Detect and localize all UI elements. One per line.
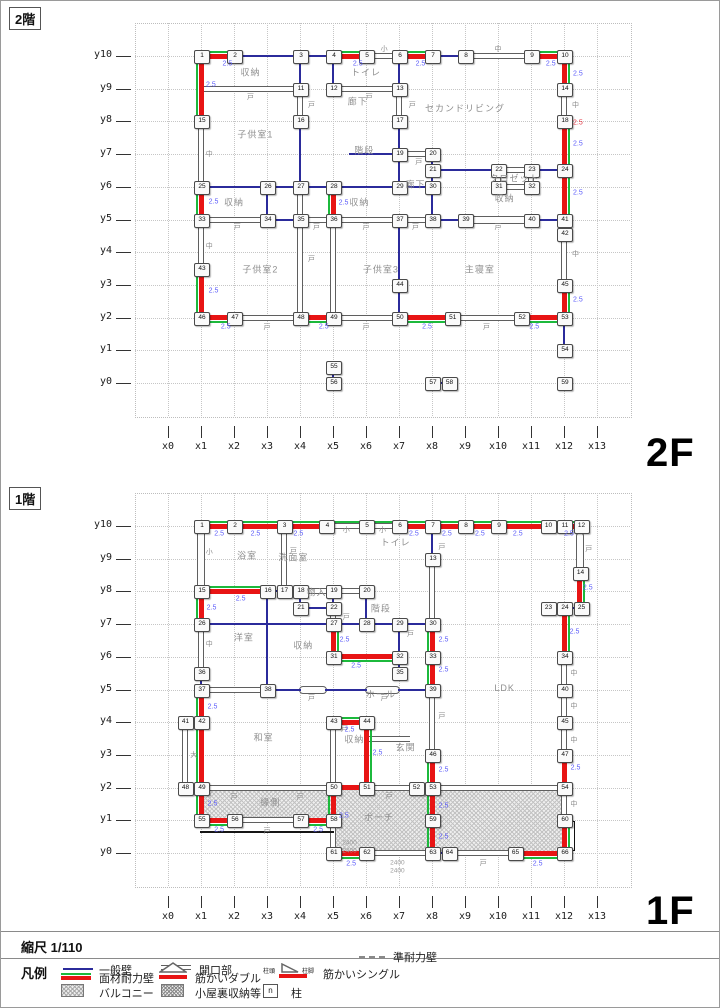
strength-value-label: 2.5 — [475, 530, 485, 537]
y-axis-label: y9 — [76, 552, 112, 563]
x-axis-tick — [465, 426, 466, 438]
wall-opening — [297, 219, 303, 319]
dimension-label: 2400 — [342, 839, 356, 846]
door-window-label: 戸 — [409, 100, 416, 110]
door-window-label: 戸 — [363, 322, 370, 332]
legend-brace-double-red — [159, 975, 187, 979]
y-axis-label: y3 — [76, 278, 112, 289]
node-box: 57 — [425, 377, 441, 391]
x-axis-tick — [564, 426, 565, 438]
x-axis-label: x7 — [385, 911, 413, 922]
node-box: 52 — [409, 782, 425, 796]
y-axis-label: y10 — [76, 49, 112, 60]
door-window-label: 戸 — [308, 254, 315, 264]
y-axis-tick — [116, 285, 131, 286]
x-axis-label: x7 — [385, 441, 413, 452]
door-window-label: 中 — [206, 241, 213, 251]
node-box: 41 — [557, 214, 573, 228]
strength-value-label: 2.5 — [546, 60, 556, 67]
door-window-label: 戸 — [231, 792, 238, 802]
door-window-label: 中 — [495, 44, 502, 54]
y-axis-tick — [116, 722, 131, 723]
node-box: 17 — [392, 115, 408, 129]
wall-opening — [200, 785, 334, 791]
x-axis-tick — [399, 896, 400, 908]
room-label: 子供室2 — [242, 262, 278, 275]
door-window-label: 小 — [343, 525, 350, 535]
door-window-label: 戸 — [438, 711, 445, 721]
strength-value-label: 2.5 — [439, 666, 449, 673]
wall-structural-red — [200, 589, 268, 594]
panel-green-line — [332, 660, 400, 662]
node-box: 32 — [392, 651, 408, 665]
strength-value-label: 2.5 — [208, 704, 218, 711]
x-axis-label: x1 — [187, 911, 215, 922]
structural-wall-plan-page: 2階 1階 2F 1F 1234567891011121314151617181… — [0, 0, 720, 1008]
node-box: 55 — [194, 814, 210, 828]
strength-value-label: 2.5 — [345, 726, 355, 733]
x-axis-tick — [234, 896, 235, 908]
y-axis-label: y5 — [76, 213, 112, 224]
wall-opening — [431, 785, 565, 791]
wall-structural-red — [332, 654, 400, 659]
door-window-label: 戸 — [234, 222, 241, 232]
wall-opening — [233, 817, 301, 823]
legend-brace-single-icon — [281, 963, 299, 973]
node-box: 21 — [293, 602, 309, 616]
x-axis-label: x0 — [154, 441, 182, 452]
x-axis-tick — [267, 426, 268, 438]
wall-opening — [330, 219, 336, 319]
node-box: 7 — [425, 520, 441, 534]
x-axis-tick — [498, 426, 499, 438]
strength-value-label: 2.5 — [206, 82, 216, 89]
y-axis-tick — [116, 853, 131, 854]
y-axis-label: y6 — [76, 180, 112, 191]
node-box: 21 — [425, 164, 441, 178]
node-box: 36 — [194, 667, 210, 681]
node-box: 14 — [573, 567, 589, 581]
legend-semi-wall-label: 準耐力壁 — [393, 949, 437, 965]
strength-value-label: 2.5 — [573, 141, 583, 148]
x-axis-label: x5 — [319, 911, 347, 922]
door-window-label: 戸 — [386, 791, 393, 801]
node-box: 42 — [194, 716, 210, 730]
legend-brace-head-label: 柱頭 — [263, 966, 275, 975]
x-axis-label: x11 — [517, 441, 545, 452]
strength-value-label: 2.5 — [209, 198, 219, 205]
dimension-label: 2400 — [342, 848, 356, 855]
node-box: 66 — [557, 847, 573, 861]
room-label: 収納 — [224, 196, 244, 209]
strength-value-label: 2.5 — [513, 530, 523, 537]
node-box: 51 — [359, 782, 375, 796]
node-box: 34 — [260, 214, 276, 228]
wall-opening — [182, 721, 188, 788]
panel-green-line — [427, 754, 429, 854]
room-label: 物入 — [306, 586, 326, 599]
y-axis-tick — [116, 591, 131, 592]
door-window-label: 戸 — [363, 222, 370, 232]
strength-value-label: 2.5 — [442, 530, 452, 537]
node-box: 24 — [557, 164, 573, 178]
room-label: 廊下 — [405, 178, 425, 191]
divider-legend — [1, 958, 720, 959]
wall-opening — [448, 850, 516, 856]
x-axis-label: x8 — [418, 911, 446, 922]
legend-brace-single-label: 筋かいシングル — [323, 966, 400, 982]
x-axis-label: x3 — [253, 911, 281, 922]
x-axis-tick — [432, 426, 433, 438]
legend-attic-sample — [161, 984, 184, 997]
node-box: 16 — [260, 585, 276, 599]
node-box: 48 — [178, 782, 194, 796]
panel-green-line — [200, 586, 268, 588]
node-box: 45 — [557, 279, 573, 293]
node-box: 26 — [194, 618, 210, 632]
node-box: 54 — [557, 344, 573, 358]
node-box: 19 — [326, 585, 342, 599]
y-axis-tick — [116, 820, 131, 821]
panel-green-line — [200, 521, 582, 523]
node-box: 35 — [392, 667, 408, 681]
node-box: 15 — [194, 585, 210, 599]
wall-opening — [330, 721, 336, 788]
strength-value-label: 2.5 — [533, 860, 543, 867]
x-axis-label: x8 — [418, 441, 446, 452]
x-axis-label: x6 — [352, 441, 380, 452]
door-window-label: 中 — [570, 735, 577, 745]
x-axis-label: x12 — [550, 441, 578, 452]
floor-2f-title: 2階 — [9, 7, 41, 30]
door-window-label: 中 — [570, 799, 577, 809]
strength-value-label: 2.5 — [373, 750, 383, 757]
node-box: 47 — [557, 749, 573, 763]
legend-balcony-label: バルコニー — [99, 985, 154, 1001]
room-label: クロゼット — [489, 171, 539, 184]
x-axis-tick — [498, 896, 499, 908]
room-label: 収納 — [344, 732, 364, 745]
y-axis-label: y8 — [76, 114, 112, 125]
node-box: 16 — [293, 115, 309, 129]
y-axis-tick — [116, 350, 131, 351]
x-axis-tick — [531, 896, 532, 908]
strength-value-label: 2.5 — [209, 287, 219, 294]
x-axis-tick — [366, 426, 367, 438]
strength-value-label: 2.5 — [236, 595, 246, 602]
node-box: 53 — [425, 782, 441, 796]
y-axis-tick — [116, 788, 131, 789]
node-box: 39 — [458, 214, 474, 228]
node-box: 51 — [445, 312, 461, 326]
x-axis-label: x2 — [220, 441, 248, 452]
door-window-label: 戸 — [412, 222, 419, 232]
x-axis-label: x10 — [484, 911, 512, 922]
room-label: 収納 — [495, 192, 515, 205]
node-box: 25 — [574, 602, 590, 616]
y-axis-tick — [116, 187, 131, 188]
door-window-label: 戸 — [415, 157, 422, 167]
strength-value-label: 2.5 — [422, 323, 432, 330]
wall-general — [200, 186, 301, 188]
door-window-label: 小 — [206, 547, 213, 557]
x-axis-tick — [300, 426, 301, 438]
y-axis-label: y2 — [76, 781, 112, 792]
room-label: 浴室 — [237, 549, 257, 562]
node-box: 37 — [392, 214, 408, 228]
node-box: 4 — [319, 520, 335, 534]
dimension-label: 2400 — [390, 859, 404, 866]
node-box: 28 — [359, 618, 375, 632]
legend-title: 凡例 — [21, 963, 47, 982]
door-window-label: 中 — [206, 639, 213, 649]
x-axis-tick — [564, 896, 565, 908]
node-box: 8 — [458, 520, 474, 534]
legend-panel-wall-label: 面材耐力壁 — [99, 970, 154, 986]
room-label: 廊下 — [348, 95, 368, 108]
legend-post-sample: n — [263, 984, 278, 998]
node-box: 6 — [392, 50, 408, 64]
node-box: 30 — [425, 618, 441, 632]
node-box: 56 — [227, 814, 243, 828]
node-box: 55 — [326, 361, 342, 375]
y-axis-tick — [116, 755, 131, 756]
strength-value-label: 2.5 — [573, 190, 583, 197]
room-label: 階段 — [371, 601, 391, 614]
node-box: 42 — [557, 228, 573, 242]
node-box: 28 — [326, 181, 342, 195]
legend-panel-red-sample — [61, 976, 91, 980]
node-box: 29 — [392, 618, 408, 632]
strength-value-label: 2.5 — [439, 766, 449, 773]
node-box: 35 — [293, 214, 309, 228]
door-window-label: 戸 — [407, 629, 414, 639]
node-box: 38 — [260, 684, 276, 698]
door-window-label: 戸 — [290, 546, 297, 556]
strength-value-label: 2.5 — [570, 629, 580, 636]
x-axis-label: x0 — [154, 911, 182, 922]
wall-opening — [200, 687, 268, 693]
node-box: 23 — [541, 602, 557, 616]
strength-value-label: 2.5 — [214, 530, 224, 537]
node-box: 8 — [458, 50, 474, 64]
door-window-label: 小 — [381, 44, 388, 54]
x-axis-label: x12 — [550, 911, 578, 922]
y-axis-label: y7 — [76, 147, 112, 158]
wall-general — [299, 120, 301, 187]
room-label: 和室 — [254, 730, 274, 743]
y-axis-label: y1 — [76, 343, 112, 354]
strength-value-label-red: 2.5 — [573, 120, 583, 127]
wall-opening-capsule — [197, 525, 205, 592]
panel-green-line — [370, 721, 372, 788]
wall-opening — [365, 850, 433, 856]
node-box: 30 — [425, 181, 441, 195]
node-box: 11 — [293, 83, 309, 97]
strength-value-label: 2.5 — [351, 662, 361, 669]
wall-opening — [429, 558, 435, 625]
strength-value-label: 2.5 — [573, 296, 583, 303]
strength-value-label: 2.5 — [353, 60, 363, 67]
x-axis-label: x6 — [352, 911, 380, 922]
y-axis-label: y10 — [76, 519, 112, 530]
node-box: 13 — [392, 83, 408, 97]
strength-value-label: 2.5 — [573, 70, 583, 77]
y-axis-tick — [116, 526, 131, 527]
node-box: 53 — [557, 312, 573, 326]
wall-opening — [233, 315, 301, 321]
wall-opening — [332, 315, 400, 321]
y-axis-tick — [116, 657, 131, 658]
node-box: 20 — [425, 148, 441, 162]
door-window-label: 中 — [570, 668, 577, 678]
y-axis-tick — [116, 383, 131, 384]
node-box: 54 — [557, 782, 573, 796]
wall-structural-red — [199, 55, 204, 122]
y-axis-label: y0 — [76, 846, 112, 857]
node-box: 46 — [194, 312, 210, 326]
strength-value-label: 2.5 — [221, 323, 231, 330]
wall-opening — [429, 689, 435, 756]
x-axis-tick — [597, 896, 598, 908]
legend-semi-wall-sample — [359, 956, 385, 958]
node-box: 3 — [293, 50, 309, 64]
room-label: 子供室1 — [237, 128, 273, 141]
y-axis-tick — [116, 56, 131, 57]
node-box: 34 — [557, 651, 573, 665]
x-axis-tick — [333, 896, 334, 908]
door-window-label: 大 — [190, 750, 197, 760]
x-axis-label: x13 — [583, 441, 611, 452]
strength-value-label: 2.5 — [346, 860, 356, 867]
node-box: 27 — [293, 181, 309, 195]
panel-green-line — [196, 55, 198, 122]
x-axis-label: x5 — [319, 441, 347, 452]
node-box: 41 — [178, 716, 194, 730]
grid-line-h — [135, 285, 630, 286]
node-box: 12 — [326, 83, 342, 97]
node-box: 52 — [514, 312, 530, 326]
x-axis-label: x4 — [286, 911, 314, 922]
strength-value-label: 2.5 — [340, 637, 350, 644]
door-window-label: 戸 — [480, 858, 487, 868]
x-axis-tick — [267, 896, 268, 908]
node-box: 59 — [557, 377, 573, 391]
wall-general — [332, 623, 433, 625]
x-axis-tick — [300, 896, 301, 908]
node-box: 25 — [194, 181, 210, 195]
y-axis-tick — [116, 252, 131, 253]
x-axis-label: x1 — [187, 441, 215, 452]
x-axis-label: x10 — [484, 441, 512, 452]
y-axis-label: y7 — [76, 617, 112, 628]
room-label: トイレ — [351, 66, 381, 79]
strength-value-label: 2.5 — [214, 827, 224, 834]
y-axis-tick — [116, 690, 131, 691]
x-axis-label: x13 — [583, 911, 611, 922]
y-axis-tick — [116, 89, 131, 90]
node-box: 3 — [277, 520, 293, 534]
node-box: 36 — [326, 214, 342, 228]
y-axis-tick — [116, 559, 131, 560]
wall-opening — [332, 86, 400, 92]
y-axis-label: y1 — [76, 813, 112, 824]
door-window-label: 戸 — [297, 792, 304, 802]
wall-structural-red — [199, 689, 204, 789]
node-box: 1 — [194, 50, 210, 64]
door-window-label: 戸 — [483, 322, 490, 332]
node-box: 61 — [326, 847, 342, 861]
node-box: 49 — [194, 782, 210, 796]
node-box: 48 — [293, 312, 309, 326]
room-label: 収納 — [240, 66, 260, 79]
y-axis-tick — [116, 220, 131, 221]
legend-post-label: 柱 — [291, 985, 302, 1001]
legend-panel-green-sample — [61, 973, 91, 975]
door-window-label: 中 — [572, 249, 579, 259]
node-box: 56 — [326, 377, 342, 391]
node-box: 7 — [425, 50, 441, 64]
node-box: 37 — [194, 684, 210, 698]
node-box: 5 — [359, 520, 375, 534]
x-axis-label: x9 — [451, 441, 479, 452]
strength-value-label: 2.5 — [416, 60, 426, 67]
x-axis-tick — [201, 426, 202, 438]
node-box: 60 — [557, 814, 573, 828]
x-axis-tick — [168, 896, 169, 908]
node-box: 26 — [260, 181, 276, 195]
y-axis-tick — [116, 624, 131, 625]
room-label: ポーチ — [364, 811, 394, 824]
legend-brace-double-label: 筋かいダブル — [195, 970, 261, 986]
room-label: 玄関 — [396, 740, 416, 753]
strength-value-label: 2.5 — [293, 530, 303, 537]
node-box: 31 — [326, 651, 342, 665]
strength-value-label: 2.5 — [207, 604, 217, 611]
grid-line-h — [135, 383, 630, 384]
scale-label: 縮尺 1/110 — [21, 937, 82, 956]
y-axis-label: y4 — [76, 715, 112, 726]
node-box: 45 — [557, 716, 573, 730]
door-window-label: 小 — [379, 525, 386, 535]
node-box: 4 — [326, 50, 342, 64]
wall-opening — [451, 315, 522, 321]
legend-balcony-sample — [61, 984, 84, 997]
x-axis-tick — [234, 426, 235, 438]
node-box: 27 — [326, 618, 342, 632]
strength-value-label: 2.5 — [339, 200, 349, 207]
room-label: セカンドリビング — [425, 101, 505, 114]
strength-value-label: 2.5 — [409, 530, 419, 537]
y-axis-label: y5 — [76, 683, 112, 694]
x-axis-tick — [399, 426, 400, 438]
node-box: 50 — [326, 782, 342, 796]
node-box: 57 — [293, 814, 309, 828]
room-label: 収納 — [349, 196, 369, 209]
node-box: 10 — [541, 520, 557, 534]
node-box: 6 — [392, 520, 408, 534]
door-window-label: 戸 — [264, 826, 271, 836]
node-box: 33 — [194, 214, 210, 228]
x-axis-tick — [201, 896, 202, 908]
room-label: 洋室 — [234, 631, 254, 644]
room-label: トイレ — [381, 536, 411, 549]
node-box: 13 — [425, 553, 441, 567]
strength-value-label: 2.5 — [439, 833, 449, 840]
legend-brace-double-icon — [159, 962, 187, 973]
grid-line-h — [135, 252, 630, 253]
node-box: 59 — [425, 814, 441, 828]
